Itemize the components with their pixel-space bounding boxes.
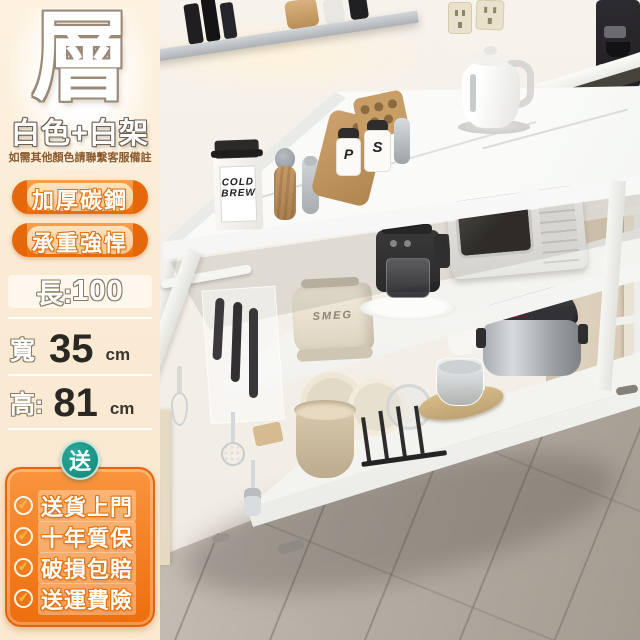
divider [8, 317, 152, 319]
gift-item: ✔ 送運費險 [7, 583, 153, 614]
slotted-spatula [242, 460, 266, 544]
wooden-box [252, 421, 284, 446]
rice-cooker-handle-side [578, 324, 588, 344]
whisk-head [171, 392, 188, 426]
divider [8, 428, 152, 430]
gift-panel: ✔ 送貨上門 ✔ 十年質保 ✔ 破損包賠 ✔ 送運費險 [5, 467, 155, 627]
gift-item: ✔ 破損包賠 [7, 552, 153, 583]
rice-cooker-handle-side [476, 328, 486, 348]
width-label: 寬 [10, 331, 35, 367]
pepper-grinder [273, 148, 297, 220]
feature-badge-label: 加厚碳鋼 [12, 183, 148, 215]
feature-badge: 承重強悍 [12, 223, 148, 257]
outlet-slot [455, 10, 458, 16]
check-icon: ✔ [13, 588, 34, 609]
width-value: 35 [49, 327, 94, 372]
gift-badge-label: 送 [69, 444, 91, 476]
knife-handle [249, 308, 258, 398]
coffee-bag-label: COLD BREW [219, 165, 257, 222]
spice-jar-p: P [336, 128, 361, 176]
power-outlet [448, 2, 472, 34]
outlet-slot [488, 18, 492, 24]
outlet-slot [462, 10, 465, 16]
gift-item-text: 送運費險 [38, 583, 136, 615]
gift-item: ✔ 十年質保 [7, 521, 153, 552]
outlet-slot [484, 7, 487, 13]
skimmer-handle [231, 412, 235, 444]
egg-hole [360, 104, 371, 115]
black-bottle [183, 3, 204, 45]
length-label: 長: [36, 272, 72, 311]
whisk-handle [177, 366, 182, 394]
gift-badge: 送 [60, 440, 100, 480]
feature-badge-label: 承重強悍 [12, 226, 148, 258]
outlet-slot [493, 7, 496, 13]
coffee-bag-text: BREW [221, 187, 255, 199]
gift-item-text: 破損包賠 [38, 552, 136, 584]
white-jar [322, 0, 345, 24]
panel-note: 如需其他顏色請聯繫客服備註 [0, 149, 160, 165]
width-row: 寬 35 cm [10, 328, 154, 370]
espresso-cup [606, 42, 630, 57]
gift-item-text: 十年質保 [38, 521, 136, 553]
jar-letter: S [364, 139, 391, 156]
black-bottle [219, 2, 237, 40]
coffee-maker-base-plate [360, 296, 456, 320]
spatula-handle [251, 460, 255, 490]
panel-subtitle: 白色+白架 [0, 110, 160, 152]
grinder-body [274, 166, 296, 220]
product-promo-image: SMEG [0, 0, 640, 640]
height-value: 81 [53, 381, 98, 426]
height-label: 高: [10, 385, 43, 421]
length-band: 長: 100 [8, 275, 152, 308]
black-bottle [200, 0, 220, 42]
espresso-group-head [604, 26, 626, 38]
rack-wire [396, 406, 407, 458]
height-unit: cm [110, 399, 135, 419]
kettle-gauge [470, 74, 476, 112]
spatula-head [244, 488, 261, 516]
check-icon: ✔ [13, 495, 34, 516]
power-outlet [475, 0, 504, 30]
jar-letter: P [336, 146, 361, 162]
shaker-cap [304, 156, 317, 166]
whisk [170, 366, 190, 466]
check-icon: ✔ [13, 526, 34, 547]
headline-char: 層 [10, 6, 152, 109]
feature-badge: 加厚碳鋼 [12, 180, 148, 214]
length-value: 100 [72, 275, 123, 308]
rice-cooker-body [483, 320, 581, 376]
rack-wire [361, 417, 371, 463]
steel-shaker [394, 118, 410, 164]
height-row: 高: 81 cm [10, 382, 154, 424]
glass-bowl-rim [439, 360, 481, 374]
electric-kettle [456, 42, 536, 134]
gift-item-text: 送貨上門 [38, 490, 136, 522]
kettle-knob [484, 46, 497, 55]
check-icon: ✔ [13, 557, 34, 578]
gift-item: ✔ 送貨上門 [7, 490, 153, 521]
width-unit: cm [106, 345, 131, 365]
spice-jar-s: S [364, 120, 391, 172]
divider [8, 374, 152, 376]
coffee-bag: COLD BREW [210, 137, 265, 233]
promo-panel: 層 白色+白架 如需其他顏色請聯繫客服備註 加厚碳鋼 承重強悍 長: 100 寬… [0, 0, 160, 640]
toaster-base [297, 346, 374, 362]
outlet-slot [458, 22, 462, 28]
beige-pot-rim [294, 400, 356, 420]
rack-wire [378, 411, 389, 461]
kitchen-photo: SMEG [150, 0, 640, 640]
